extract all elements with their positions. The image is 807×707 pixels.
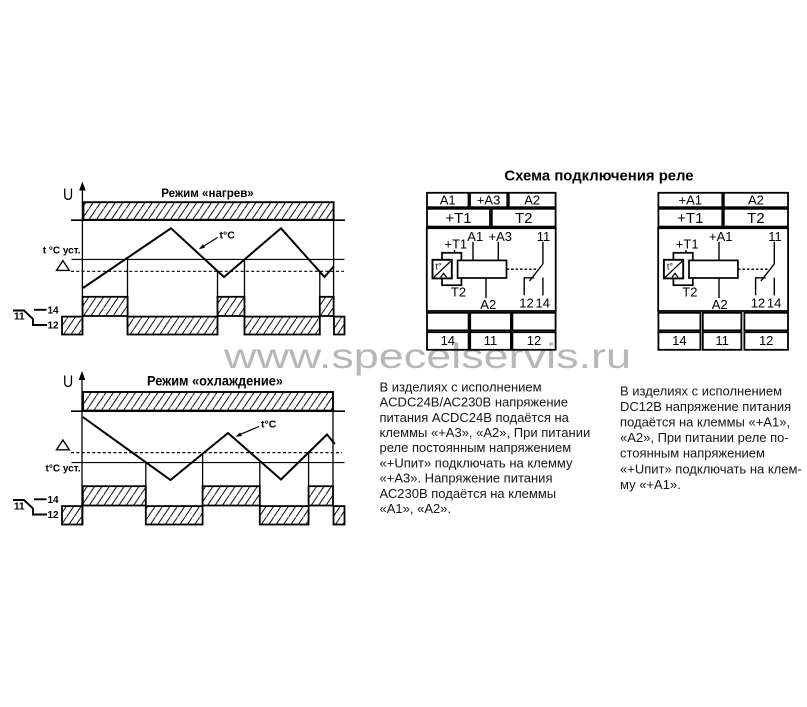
svg-text:11: 11 xyxy=(715,333,729,348)
svg-text:12: 12 xyxy=(519,296,533,311)
svg-text:«+Uпит» подключать на клемму: «+Uпит» подключать на клемму xyxy=(380,455,574,470)
svg-text:«+А3». Напряжение питания: «+А3». Напряжение питания xyxy=(380,471,553,486)
svg-text:12: 12 xyxy=(48,320,60,331)
svg-text:Режим «нагрев»: Режим «нагрев» xyxy=(161,186,254,200)
svg-text:му «+А1».: му «+А1». xyxy=(620,477,681,492)
svg-text:t°C: t°C xyxy=(261,418,277,430)
svg-text:A2: A2 xyxy=(480,297,496,312)
svg-text:«А2», При питании реле по-: «А2», При питании реле по- xyxy=(620,430,789,445)
svg-text:«А1», «А2».: «А1», «А2». xyxy=(380,501,452,516)
svg-text:В изделиях с исполнением: В изделиях с исполнением xyxy=(380,379,542,394)
svg-text:A2: A2 xyxy=(748,193,764,208)
svg-text:U: U xyxy=(63,373,73,391)
svg-text:14: 14 xyxy=(536,296,550,311)
svg-text:+A3: +A3 xyxy=(477,193,501,208)
svg-text:t°: t° xyxy=(436,262,443,272)
svg-text:+A1: +A1 xyxy=(679,193,703,208)
svg-text:клеммы «+А3», «А2», При питани: клеммы «+А3», «А2», При питании xyxy=(380,425,591,440)
svg-text:DC12В напряжение питания: DC12В напряжение питания xyxy=(620,399,791,414)
svg-text:+A1: +A1 xyxy=(709,229,733,244)
svg-text:реле постоянным напряжением: реле постоянным напряжением xyxy=(380,440,572,455)
svg-text:+T1: +T1 xyxy=(676,237,699,252)
svg-text:12: 12 xyxy=(751,296,765,311)
svg-text:14: 14 xyxy=(672,333,686,348)
svg-text:t°C уст.: t°C уст. xyxy=(46,464,81,475)
svg-text:A2: A2 xyxy=(712,297,728,312)
svg-text:стоянным напряжением: стоянным напряжением xyxy=(620,446,765,461)
svg-text:В изделиях с исполнением: В изделиях с исполнением xyxy=(620,383,782,398)
svg-text:14: 14 xyxy=(48,495,60,506)
svg-text:A1: A1 xyxy=(440,193,456,208)
svg-text:11: 11 xyxy=(14,312,25,323)
svg-text:ACDC24В/АС230В напряжение: ACDC24В/АС230В напряжение xyxy=(380,395,569,410)
svg-text:U: U xyxy=(63,186,73,204)
svg-text:+T1: +T1 xyxy=(677,210,703,227)
svg-text:Режим «охлаждение»: Режим «охлаждение» xyxy=(147,372,283,388)
svg-text:12: 12 xyxy=(48,510,60,521)
svg-text:14: 14 xyxy=(767,296,781,311)
svg-text:t °C уст.: t °C уст. xyxy=(43,246,81,257)
svg-text:A2: A2 xyxy=(524,193,540,208)
svg-text:T2: T2 xyxy=(451,285,466,300)
svg-text:A1: A1 xyxy=(467,229,483,244)
svg-text:11: 11 xyxy=(768,229,782,244)
svg-text:11: 11 xyxy=(14,502,25,513)
svg-text:12: 12 xyxy=(527,333,541,348)
svg-text:t°: t° xyxy=(667,262,674,272)
svg-text:питания ACDC24В подаётся на: питания ACDC24В подаётся на xyxy=(380,410,570,425)
svg-text:14: 14 xyxy=(441,333,455,348)
svg-text:+A3: +A3 xyxy=(489,229,513,244)
svg-text:11: 11 xyxy=(484,333,498,348)
svg-text:11: 11 xyxy=(537,229,551,244)
svg-text:T2: T2 xyxy=(515,210,533,227)
svg-text:«+Uпит» подключать на клем-: «+Uпит» подключать на клем- xyxy=(620,461,802,476)
svg-text:T2: T2 xyxy=(747,210,765,227)
svg-text:подаётся на клеммы «+А1»,: подаётся на клеммы «+А1», xyxy=(620,415,790,430)
svg-text:14: 14 xyxy=(48,305,60,316)
svg-text:+T1: +T1 xyxy=(444,237,467,252)
svg-text:АС230В подаётся на клеммы: АС230В подаётся на клеммы xyxy=(380,486,557,501)
svg-text:12: 12 xyxy=(759,333,773,348)
svg-text:+T1: +T1 xyxy=(445,210,471,227)
svg-text:T2: T2 xyxy=(682,285,697,300)
svg-text:t°C: t°C xyxy=(220,229,236,241)
svg-text:Схема подключения реле: Схема подключения реле xyxy=(504,168,693,185)
